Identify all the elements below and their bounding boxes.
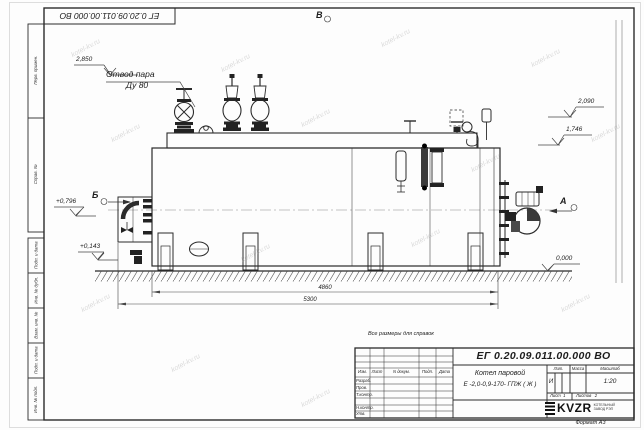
band-valves: [404, 121, 463, 133]
row-razrab: Разраб.: [356, 379, 371, 383]
product-name-line1: Котел паровой: [453, 370, 547, 377]
col-izm: Изм.: [355, 370, 370, 374]
drawing-canvas: [0, 0, 644, 430]
sheet-frame: [10, 3, 641, 428]
listov-value: 2: [595, 393, 597, 398]
view-label-b: Б: [92, 191, 98, 200]
listov-cell: Листов 2: [576, 394, 597, 398]
level-indicator: [421, 144, 444, 191]
lit-value: И: [547, 379, 555, 385]
elevation-marks: [54, 65, 604, 271]
col-podp-data-2: Подп. и дата: [34, 343, 38, 378]
row-nkontr: Н.контр.: [356, 406, 374, 410]
boiler-drawing: [95, 20, 622, 283]
steam-outlet-label-1: Отвод пара: [106, 70, 155, 79]
row-utv: Утв.: [356, 412, 366, 416]
logo-bars-icon: [545, 402, 555, 415]
elevation-0000: 0,000: [556, 256, 572, 263]
supports: [158, 233, 483, 270]
logo-sub-line2: ЗАВОД РЭП: [594, 408, 615, 412]
title-doc-number: ЕГ 0.20.09.011.00.000 ВО: [453, 351, 634, 362]
col-data: Дата: [436, 370, 453, 374]
corner-stamp-number: ЕГ 0.20.09.011.00.000 ВО: [44, 8, 175, 24]
col-inv-podl: Инв. № подл.: [34, 378, 38, 420]
water-gauge-column: [396, 151, 406, 192]
drawing-sheet: kotel-kv.ru kotel-kv.ru kotel-kv.ru kote…: [0, 0, 644, 430]
list-cell: Лист 1: [550, 394, 565, 398]
list-value: 1: [563, 393, 565, 398]
view-label-a: А: [560, 197, 567, 206]
col-n-dokum: N докум.: [384, 370, 419, 374]
elevation-2090: 2,090: [578, 99, 594, 106]
logo-text: KVZR: [557, 401, 592, 415]
product-name-line2: Е -2,0-0,9-170- ГПЖ ( Ж ): [453, 382, 547, 388]
col-perv-primen: Перв. примен.: [34, 23, 38, 117]
col-podp: Подп.: [419, 370, 436, 374]
col-podp-data-1: Подп. и дата: [34, 238, 38, 273]
massa-label: Масса: [570, 367, 586, 371]
steam-outlet-label-2: Ду 80: [126, 81, 148, 90]
listov-label: Листов: [576, 393, 591, 398]
steam-outlet-valve: [174, 89, 194, 133]
dashed-fitting: [450, 110, 463, 126]
elevation-1746: 1,746: [566, 127, 582, 134]
lit-label: Лит.: [547, 367, 570, 371]
lifting-eye: [199, 126, 213, 133]
col-inv-dubl: Инв. № дубл.: [34, 273, 38, 308]
elevation-2850: 2,850: [76, 57, 92, 64]
logo-subtext: КОТЕЛЬНЫЙ ЗАВОД РЭП: [594, 404, 615, 412]
dimension-4860: 4860: [305, 285, 345, 291]
elevation-0796: +0,796: [56, 199, 76, 206]
format-label: Формат А3: [547, 421, 634, 427]
col-list: Лист: [370, 370, 384, 374]
reference-note: Все размеры для справок: [368, 332, 434, 338]
safety-valve-1: [223, 74, 241, 131]
elevation-0143: +0,143: [80, 244, 100, 251]
dimension-5300: 5300: [290, 297, 330, 303]
row-prov: Пров.: [356, 386, 367, 390]
col-sprav-no: Справ. №: [34, 117, 38, 231]
list-label: Лист: [550, 393, 561, 398]
safety-valve-2: [251, 74, 269, 131]
row-tkontr: Т.контр.: [356, 393, 373, 397]
company-logo: KVZR КОТЕЛЬНЫЙ ЗАВОД РЭП: [545, 401, 615, 415]
masshtab-label: Масштаб: [586, 367, 634, 371]
masshtab-value: 1:20: [586, 379, 634, 386]
view-label-v: В: [316, 11, 323, 20]
col-vzam-inv: Взам. инв. №: [34, 308, 38, 343]
